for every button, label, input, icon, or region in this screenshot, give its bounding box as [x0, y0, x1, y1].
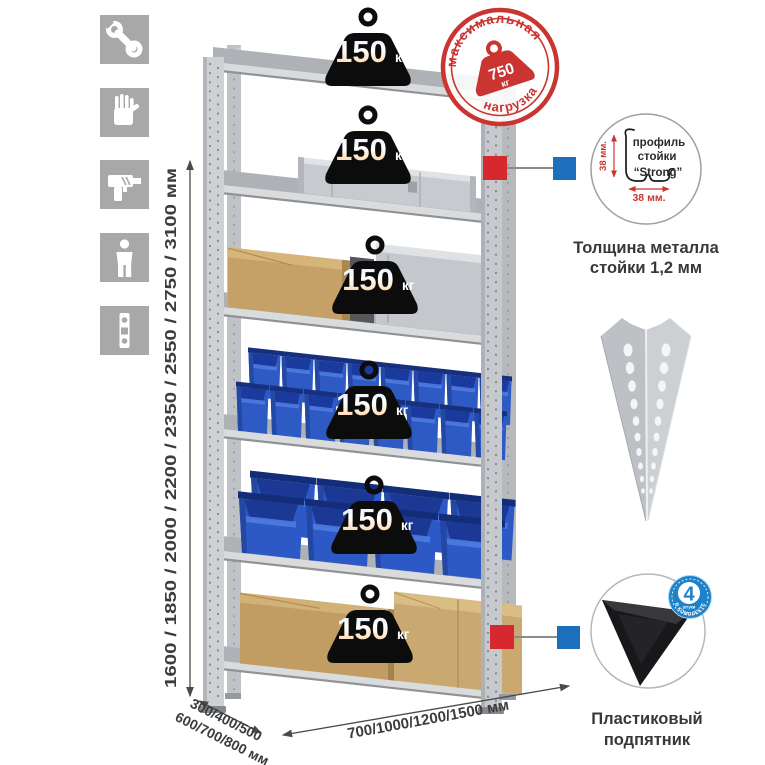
profile-label-2: стойки — [638, 151, 677, 163]
rack-post-front-right — [481, 89, 502, 709]
svg-text:150: 150 — [335, 132, 387, 167]
svg-text:150: 150 — [337, 611, 389, 646]
svg-text:150: 150 — [342, 262, 394, 297]
connector-red-square-bottom — [490, 625, 514, 649]
quantity-badge-units: штуки — [683, 605, 696, 610]
drill-icon — [100, 160, 149, 209]
svg-text:кг: кг — [396, 403, 409, 418]
connector-red-square-top — [483, 156, 507, 180]
person-icon — [100, 233, 149, 282]
svg-text:кг: кг — [401, 518, 414, 533]
wrench-icon — [100, 15, 149, 64]
profile-connector — [483, 156, 576, 180]
foot-caption-line2: подпятник — [604, 731, 691, 749]
rack-post-front-left — [203, 57, 224, 708]
level-icon — [100, 306, 149, 355]
thickness-caption-line2: стойки 1,2 мм — [590, 259, 702, 277]
corner-post-image — [601, 318, 691, 521]
assembly-icons-column — [100, 15, 149, 355]
profile-dim-vertical: 38 мм. — [598, 141, 609, 171]
profile-label-3: “Strong” — [634, 167, 683, 179]
profile-label-1: профиль — [633, 137, 686, 149]
svg-text:150: 150 — [341, 502, 393, 537]
svg-text:кг: кг — [402, 278, 415, 293]
load-badge-2: 150 кг — [325, 108, 411, 184]
foot-caption-line1: Пластиковый — [591, 710, 702, 728]
svg-text:кг: кг — [395, 148, 408, 163]
profile-dim-horizontal: 38 мм. — [632, 192, 665, 204]
max-load-stamp: максимальная нагрузка 750 кг — [428, 0, 572, 139]
load-badge-1: 150 кг — [325, 10, 411, 86]
svg-text:кг: кг — [397, 627, 410, 642]
gloves-icon — [100, 88, 149, 137]
profile-callout: 38 мм. 38 мм. профиль стойки “Strong” — [591, 114, 701, 224]
quantity-badge: 4 штуки в комплекте — [669, 576, 712, 619]
foot-connector — [490, 625, 580, 649]
connector-blue-square-top — [553, 157, 576, 180]
thickness-caption-line1: Толщина металла — [573, 239, 719, 257]
rack-foot-back-left — [225, 693, 241, 699]
plastic-foot-callout: 4 штуки в комплекте — [591, 574, 712, 688]
infographic-canvas: 1600 / 1850 / 2000 / 2200 / 2350 / 2550 … — [0, 0, 765, 765]
quantity-badge-number: 4 — [683, 584, 695, 606]
load-value: 150 — [335, 34, 387, 69]
width-dimension: 700/1000/1200/1500 мм — [283, 686, 569, 743]
load-unit: кг — [395, 50, 408, 65]
height-dimension: 1600 / 1850 / 2000 / 2200 / 2350 / 2550 … — [163, 161, 190, 696]
svg-text:150: 150 — [336, 387, 388, 422]
shelving-infographic: 1600 / 1850 / 2000 / 2200 / 2350 / 2550 … — [0, 0, 765, 765]
height-dimension-label: 1600 / 1850 / 2000 / 2200 / 2350 / 2550 … — [163, 168, 180, 688]
connector-blue-square-bottom — [557, 626, 580, 649]
